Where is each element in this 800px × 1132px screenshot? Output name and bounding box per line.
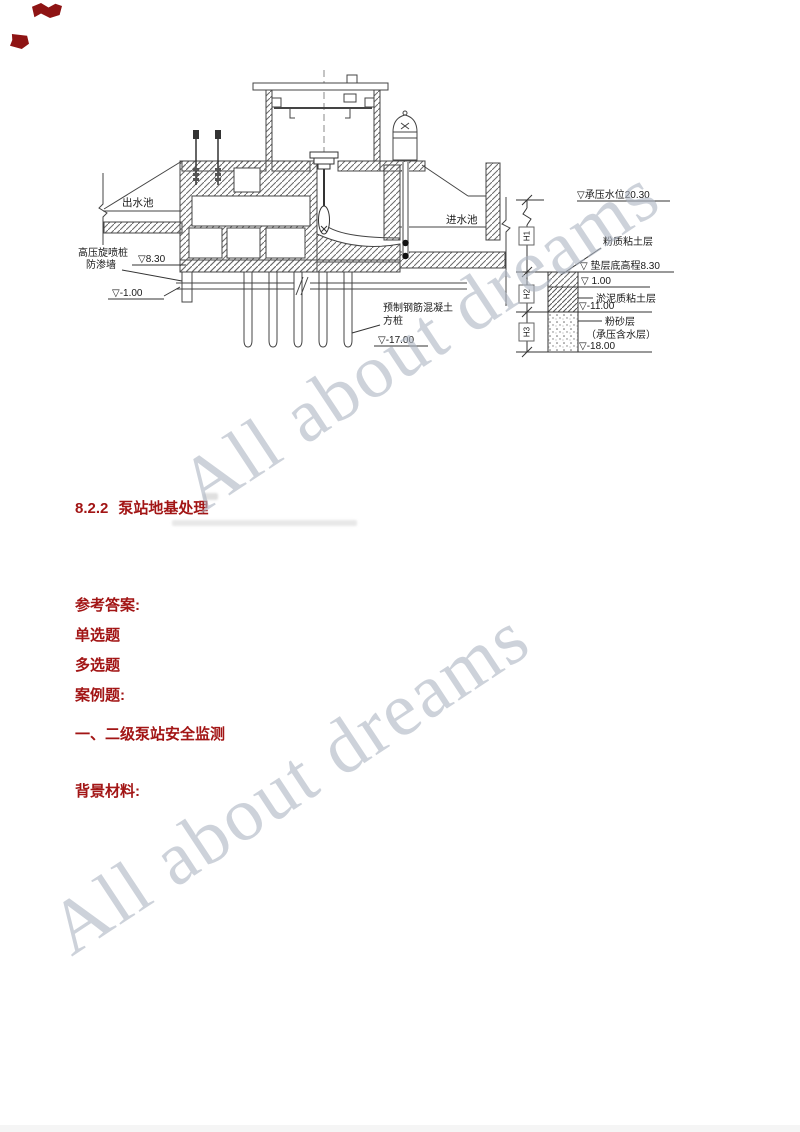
soil-column [548,272,578,352]
superstructure [253,75,388,161]
label-elev-1-00: ▽ 1.00 [581,276,611,287]
red-text-line: 单选题 [75,627,120,644]
label-jet-grouting-pile: 高压旋喷桩 [78,246,128,259]
jet-grouting-cutoff-wall [182,272,192,302]
label-precast-pile-1: 预制钢筋混凝土 [383,301,453,314]
red-text-line: 案例题: [75,687,125,704]
label-outlet-pool: 出水池 [122,196,154,209]
section-title: 泵站地基处理 [118,500,208,517]
red-text-line: 一、二级泵站安全监测 [75,726,225,743]
faint-text-smudge [203,493,218,500]
dim-label-h2: H2 [523,288,532,299]
red-text-line: 多选题 [75,657,120,674]
document-page: H1 H2 H3 [0,0,800,1132]
dim-label-h3: H3 [523,326,532,337]
label-silty-clay: 粉质粘土层 [603,235,653,248]
label-confined-water-level: ▽承压水位20.30 [577,188,650,201]
pump-station-cross-section-figure: H1 H2 H3 [72,68,728,360]
red-text-line: 参考答案: [75,597,140,614]
break-line [99,173,107,245]
substructure [180,161,400,272]
pump-station-drawing: H1 H2 H3 [72,68,728,360]
label-silty-sand: 粉砂层 [605,315,635,328]
label-inlet-pool: 进水池 [446,213,478,226]
label-cutoff-wall: 防渗墙 [86,258,116,271]
dimension-line [516,195,548,357]
label-confined-aquifer: （承压含水层） [586,328,656,341]
section-heading: 8.2.2泵站地基处理 [75,500,208,517]
label-cushion-elev: ▽ 垫层底高程8.30 [580,259,660,272]
label-elev-minus-17: ▽-17.00 [378,335,414,346]
page-bottom-strip [0,1125,800,1132]
faint-text-smudge [172,520,357,526]
red-text-line: 背景材料: [75,783,140,800]
dim-label-h1: H1 [523,230,532,241]
label-elev-8-30: ▽8.30 [138,254,166,265]
red-ink-mark [32,3,62,18]
label-precast-pile-2: 方桩 [383,314,403,327]
red-ink-mark [10,34,29,49]
label-elev-minus-11: ▽-11.00 [579,301,615,312]
label-elev-minus-1: ▽-1.00 [112,288,143,299]
label-elev-minus-18: ▽-18.00 [579,341,615,352]
section-number: 8.2.2 [75,500,108,517]
